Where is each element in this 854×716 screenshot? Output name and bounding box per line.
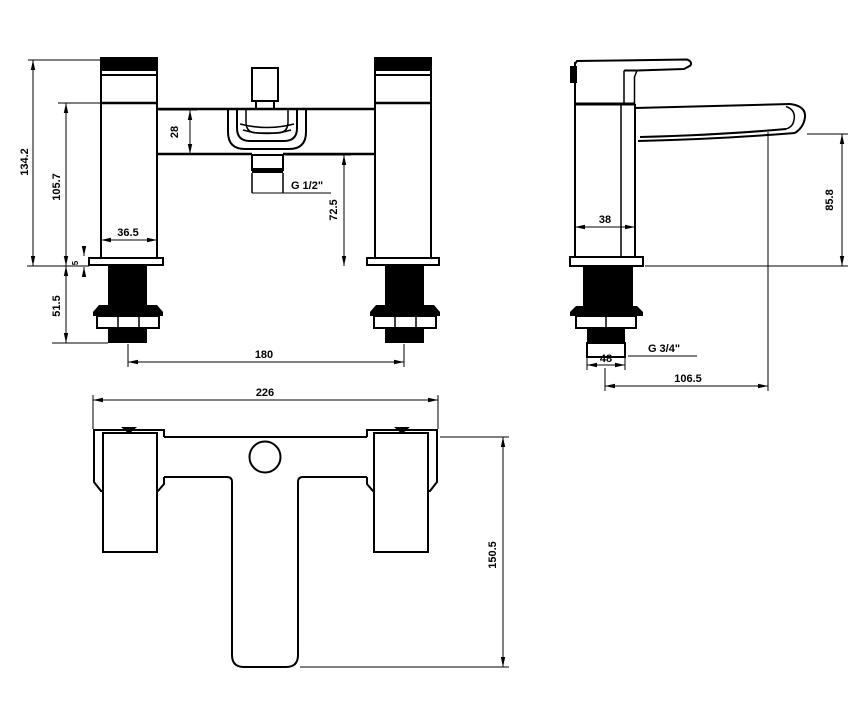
dim-overall-depth: 150.5 xyxy=(487,541,499,569)
dim-plate-thickness: 5 xyxy=(71,260,80,265)
dim-total-height: 134.2 xyxy=(19,148,31,176)
dim-tail-length: 51.5 xyxy=(51,295,63,316)
dim-inlet-thread: G 3/4" xyxy=(648,343,680,355)
plan-left-unit xyxy=(94,427,164,552)
side-view: 38 G 3/4" 48 85.8 106.5 xyxy=(570,60,848,392)
plan-diverter-circle xyxy=(250,442,281,473)
front-left-tail xyxy=(93,265,163,343)
dim-overall-width: 226 xyxy=(256,387,274,399)
dim-bar-depth: 28 xyxy=(169,126,181,138)
dim-spout-height: 85.8 xyxy=(824,189,836,210)
diverter-knob xyxy=(252,68,278,109)
side-body xyxy=(570,60,691,267)
dim-clearance: 72.5 xyxy=(328,199,340,220)
plan-right-unit xyxy=(367,427,437,552)
front-dimensions: 134.2 105.7 51.5 28 36.5 G 1/2" 72.5 5 xyxy=(19,60,404,367)
drawing-canvas: 134.2 105.7 51.5 28 36.5 G 1/2" 72.5 5 xyxy=(0,0,854,716)
front-right-pillar xyxy=(367,58,439,265)
technical-drawing: 134.2 105.7 51.5 28 36.5 G 1/2" 72.5 5 xyxy=(0,0,854,716)
side-spout xyxy=(635,104,805,141)
front-spout-end xyxy=(228,110,306,149)
dim-spout-reach: 106.5 xyxy=(674,373,702,385)
front-view: 134.2 105.7 51.5 28 36.5 G 1/2" 72.5 5 xyxy=(19,58,440,367)
plan-view: 226 150.5 xyxy=(93,387,509,667)
side-tail xyxy=(570,266,643,357)
front-right-tail xyxy=(370,265,440,343)
dim-shower-thread: G 1/2" xyxy=(291,180,323,192)
shower-outlet xyxy=(252,155,283,193)
dim-body-width: 36.5 xyxy=(117,227,138,239)
dim-body-height: 105.7 xyxy=(51,173,63,201)
plan-bar-and-spout xyxy=(164,437,367,667)
side-dimensions: 38 G 3/4" 48 85.8 106.5 xyxy=(575,132,848,391)
dim-tap-centres: 180 xyxy=(255,349,273,361)
dim-body-depth: 38 xyxy=(599,214,611,226)
dim-tail-width: 48 xyxy=(600,353,612,365)
